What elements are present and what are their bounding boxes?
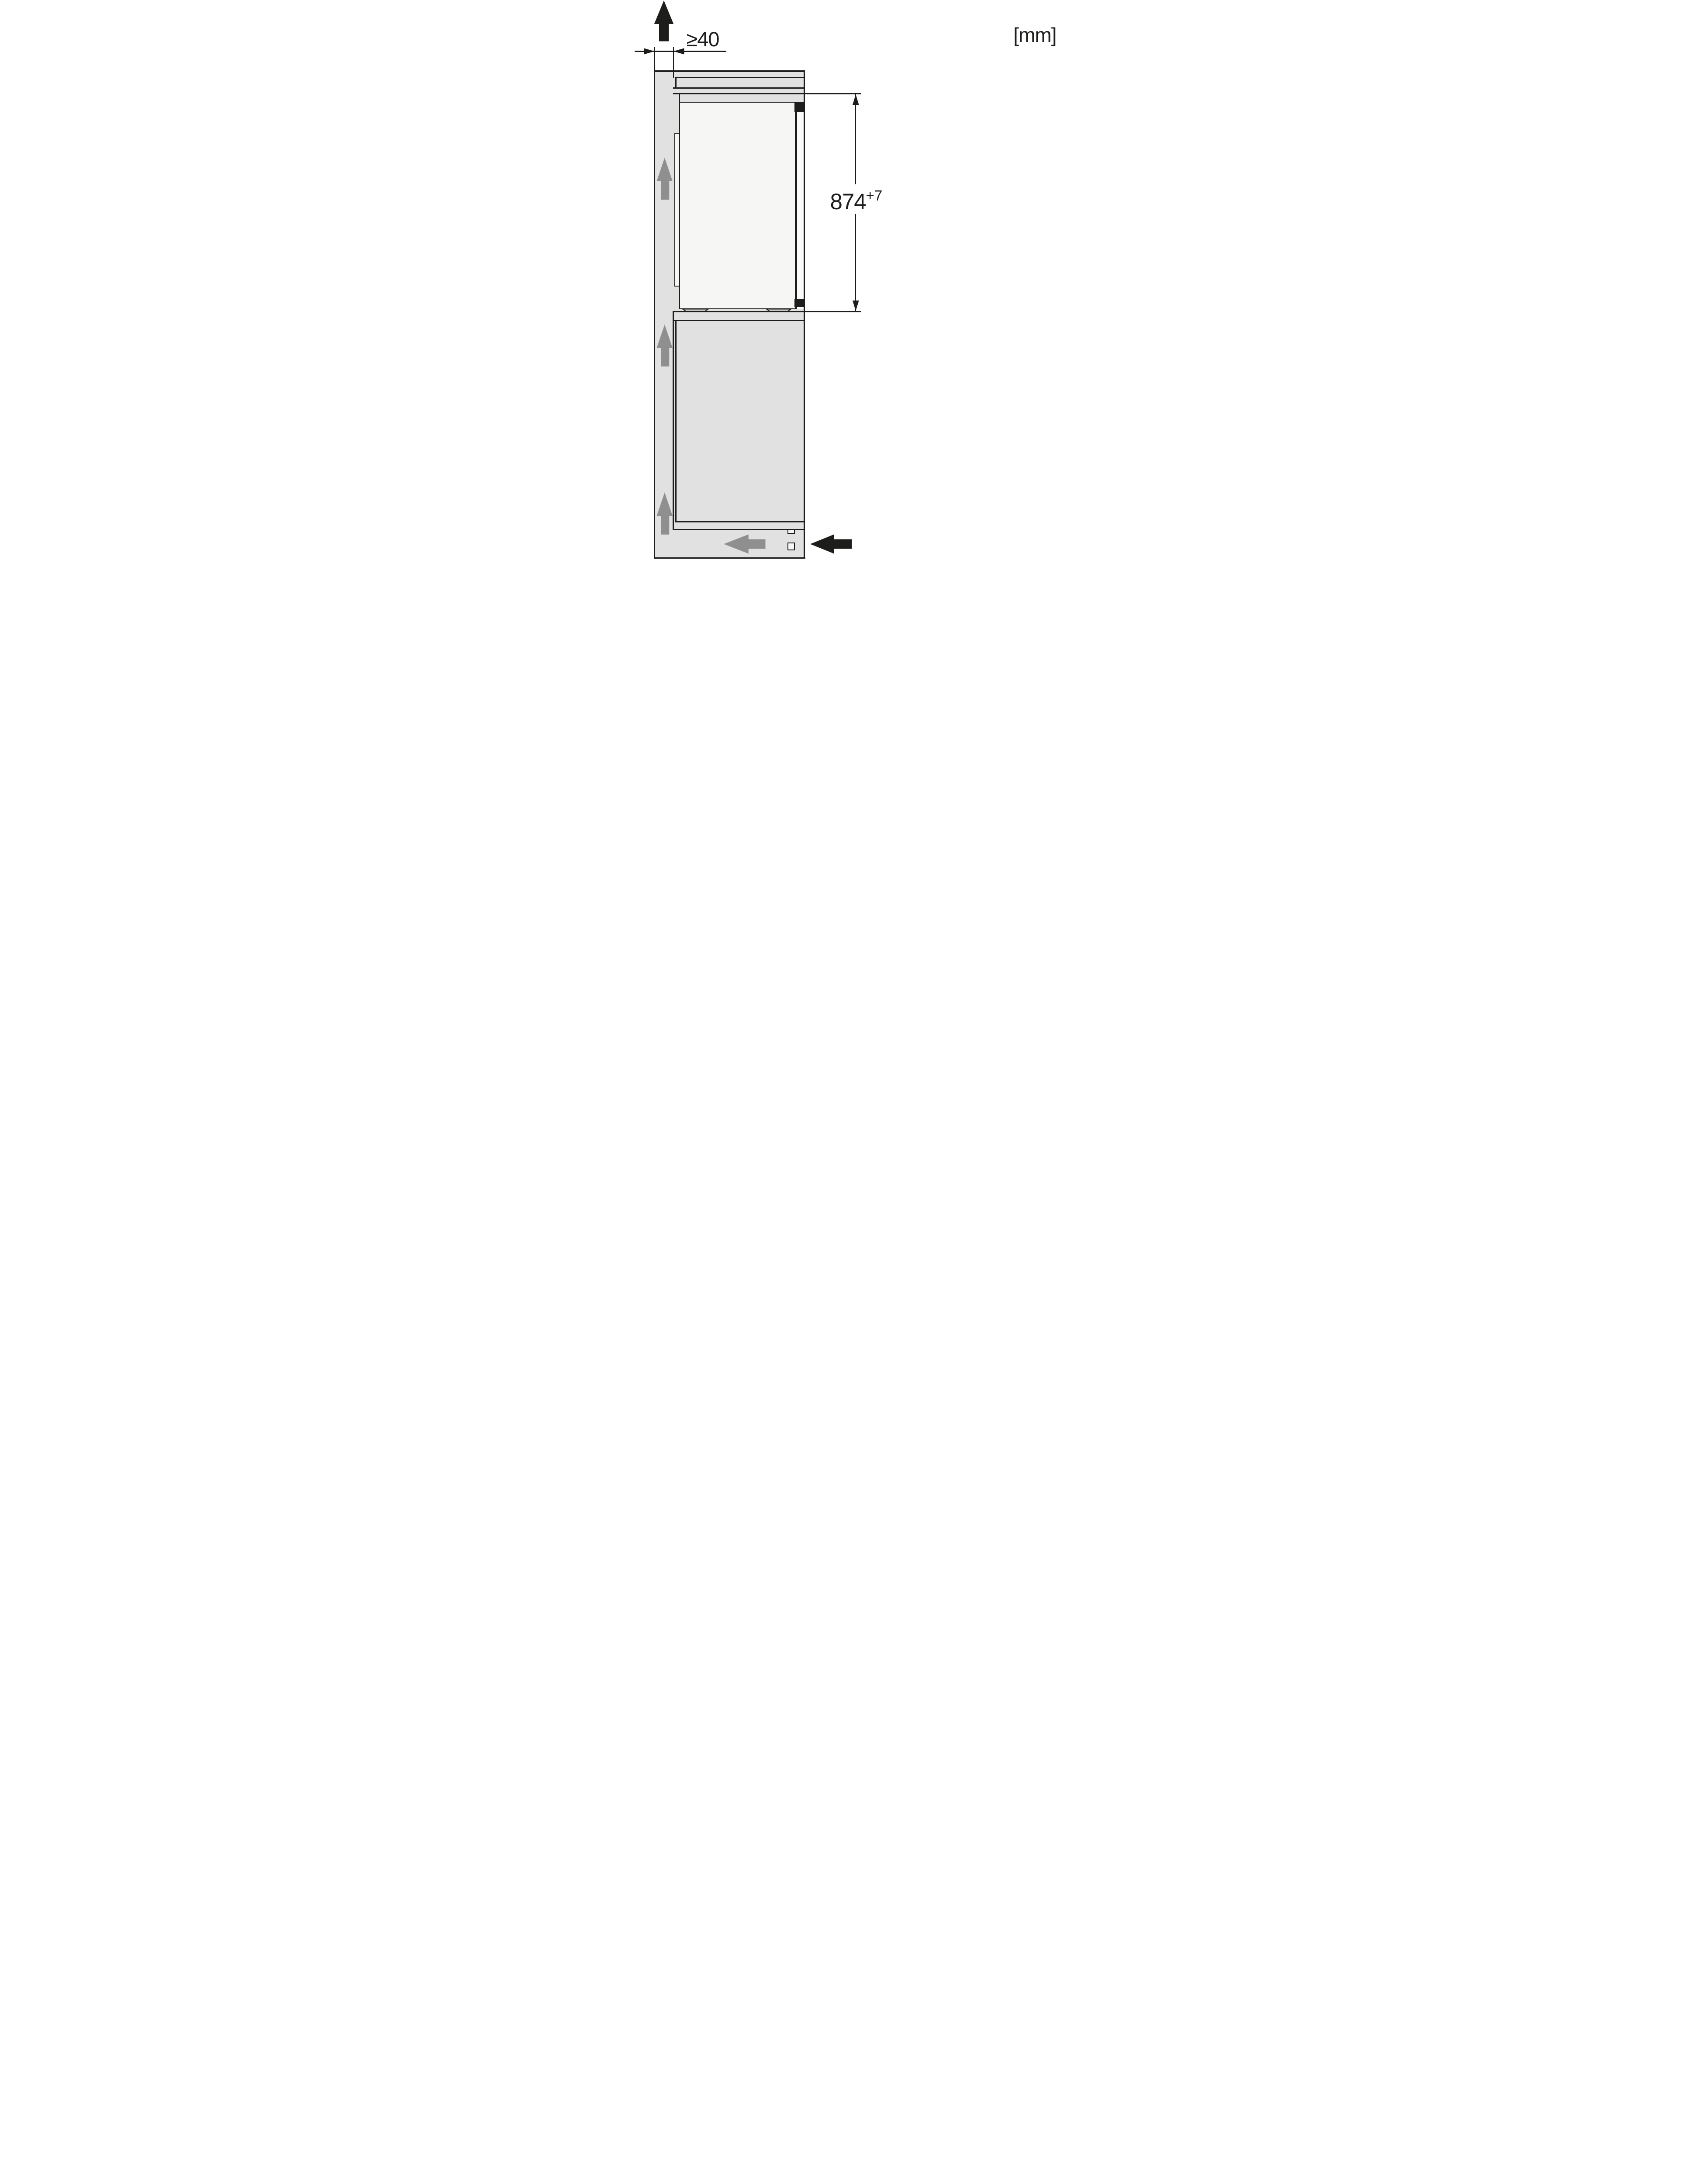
door-side-profile-bar <box>674 133 680 287</box>
cabinet-top-line <box>654 70 805 72</box>
unit-label: [mm] <box>997 25 1057 45</box>
niche-height-dim-line-top <box>855 94 856 185</box>
ge40-dimension-line <box>635 51 726 52</box>
niche-height-tolerance: +7 <box>866 187 883 204</box>
plinth-vent-slot-upper <box>787 529 795 534</box>
installation-diagram: ≥40 [mm] 874+7 <box>635 0 1058 559</box>
top-clearance-dimension-label: ≥40 <box>687 29 719 49</box>
exhaust-air-up-arrow-icon <box>654 0 673 41</box>
niche-height-dimension-label: 874+7 <box>830 189 883 213</box>
divider-top-extension-line <box>673 311 861 312</box>
floor-line <box>654 557 805 559</box>
lower-compartment-panel <box>675 320 805 522</box>
niche-height-dim-line-bottom <box>855 214 856 311</box>
top-panel-line-lower <box>673 87 804 89</box>
niche-left-line <box>673 311 674 530</box>
top-panel-line-upper <box>675 77 804 78</box>
door-front-gap-column <box>796 102 804 309</box>
door-top-connector-line <box>679 94 680 102</box>
plinth-vent-slot-lower <box>787 543 795 550</box>
wall-left-border <box>654 70 655 559</box>
fridge-door-panel <box>679 102 796 309</box>
hinge-block-bottom <box>794 299 804 308</box>
plinth-top-line <box>673 529 804 530</box>
hinge-block-top <box>794 102 804 112</box>
niche-height-value: 874 <box>830 189 866 214</box>
niche-top-extension-line <box>673 93 861 94</box>
air-inlet-left-arrow-icon <box>810 535 852 554</box>
